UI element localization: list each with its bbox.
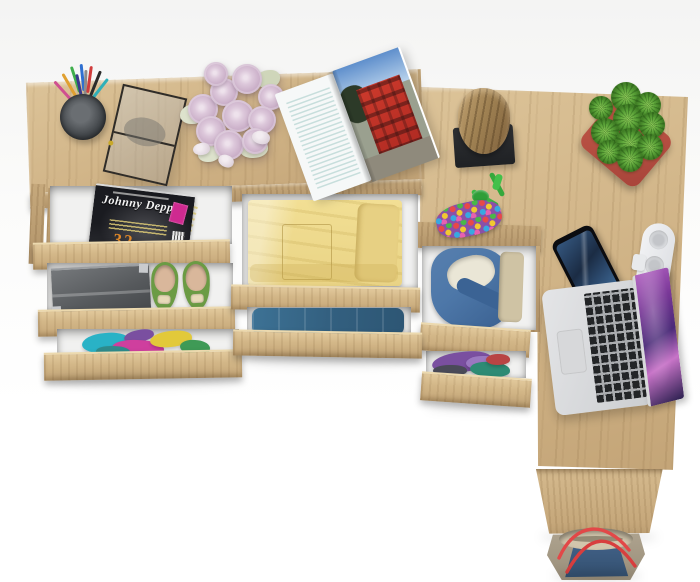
flat-bow-left xyxy=(157,295,170,304)
floor-shadow-left-stack xyxy=(46,374,244,386)
yellow-shirt xyxy=(248,200,402,286)
pen-cup-body xyxy=(60,94,106,140)
denim-jacket xyxy=(427,246,527,330)
shirt-hem-fold xyxy=(250,264,398,282)
floor-shadow-mid-stack xyxy=(240,354,424,366)
box-highlight-band xyxy=(52,289,150,297)
rose-3 xyxy=(232,64,262,94)
flat-bow-right xyxy=(190,294,203,304)
bag-straps xyxy=(547,520,645,580)
box-metal-corner-1 xyxy=(139,264,148,273)
dock-socket-1 xyxy=(648,229,670,251)
keychain-bead-pouch xyxy=(433,196,505,243)
rosette-10 xyxy=(617,146,643,172)
pen-cup xyxy=(48,64,120,144)
stump-decor xyxy=(458,88,510,154)
floor-shadow-bag xyxy=(552,572,642,580)
dock-clip xyxy=(631,254,646,272)
folded-khaki-item xyxy=(498,252,524,323)
document-box xyxy=(51,263,151,314)
floor-shadow-side-unit xyxy=(426,402,534,411)
laptop xyxy=(540,270,679,416)
glass-box-contents xyxy=(121,113,168,150)
bead-keychain xyxy=(434,174,514,240)
rosette-3 xyxy=(589,96,613,120)
rose-10 xyxy=(204,62,228,86)
glass-box-knob xyxy=(108,140,114,146)
tote-bag xyxy=(547,520,645,580)
laptop-trackpad xyxy=(556,328,587,375)
succulent-plant xyxy=(583,82,673,174)
red-clothes xyxy=(486,354,510,365)
flat-insole-left xyxy=(154,265,176,293)
product-photo: Johnny Depp 32 xyxy=(0,0,700,582)
flat-insole-right xyxy=(185,263,207,291)
